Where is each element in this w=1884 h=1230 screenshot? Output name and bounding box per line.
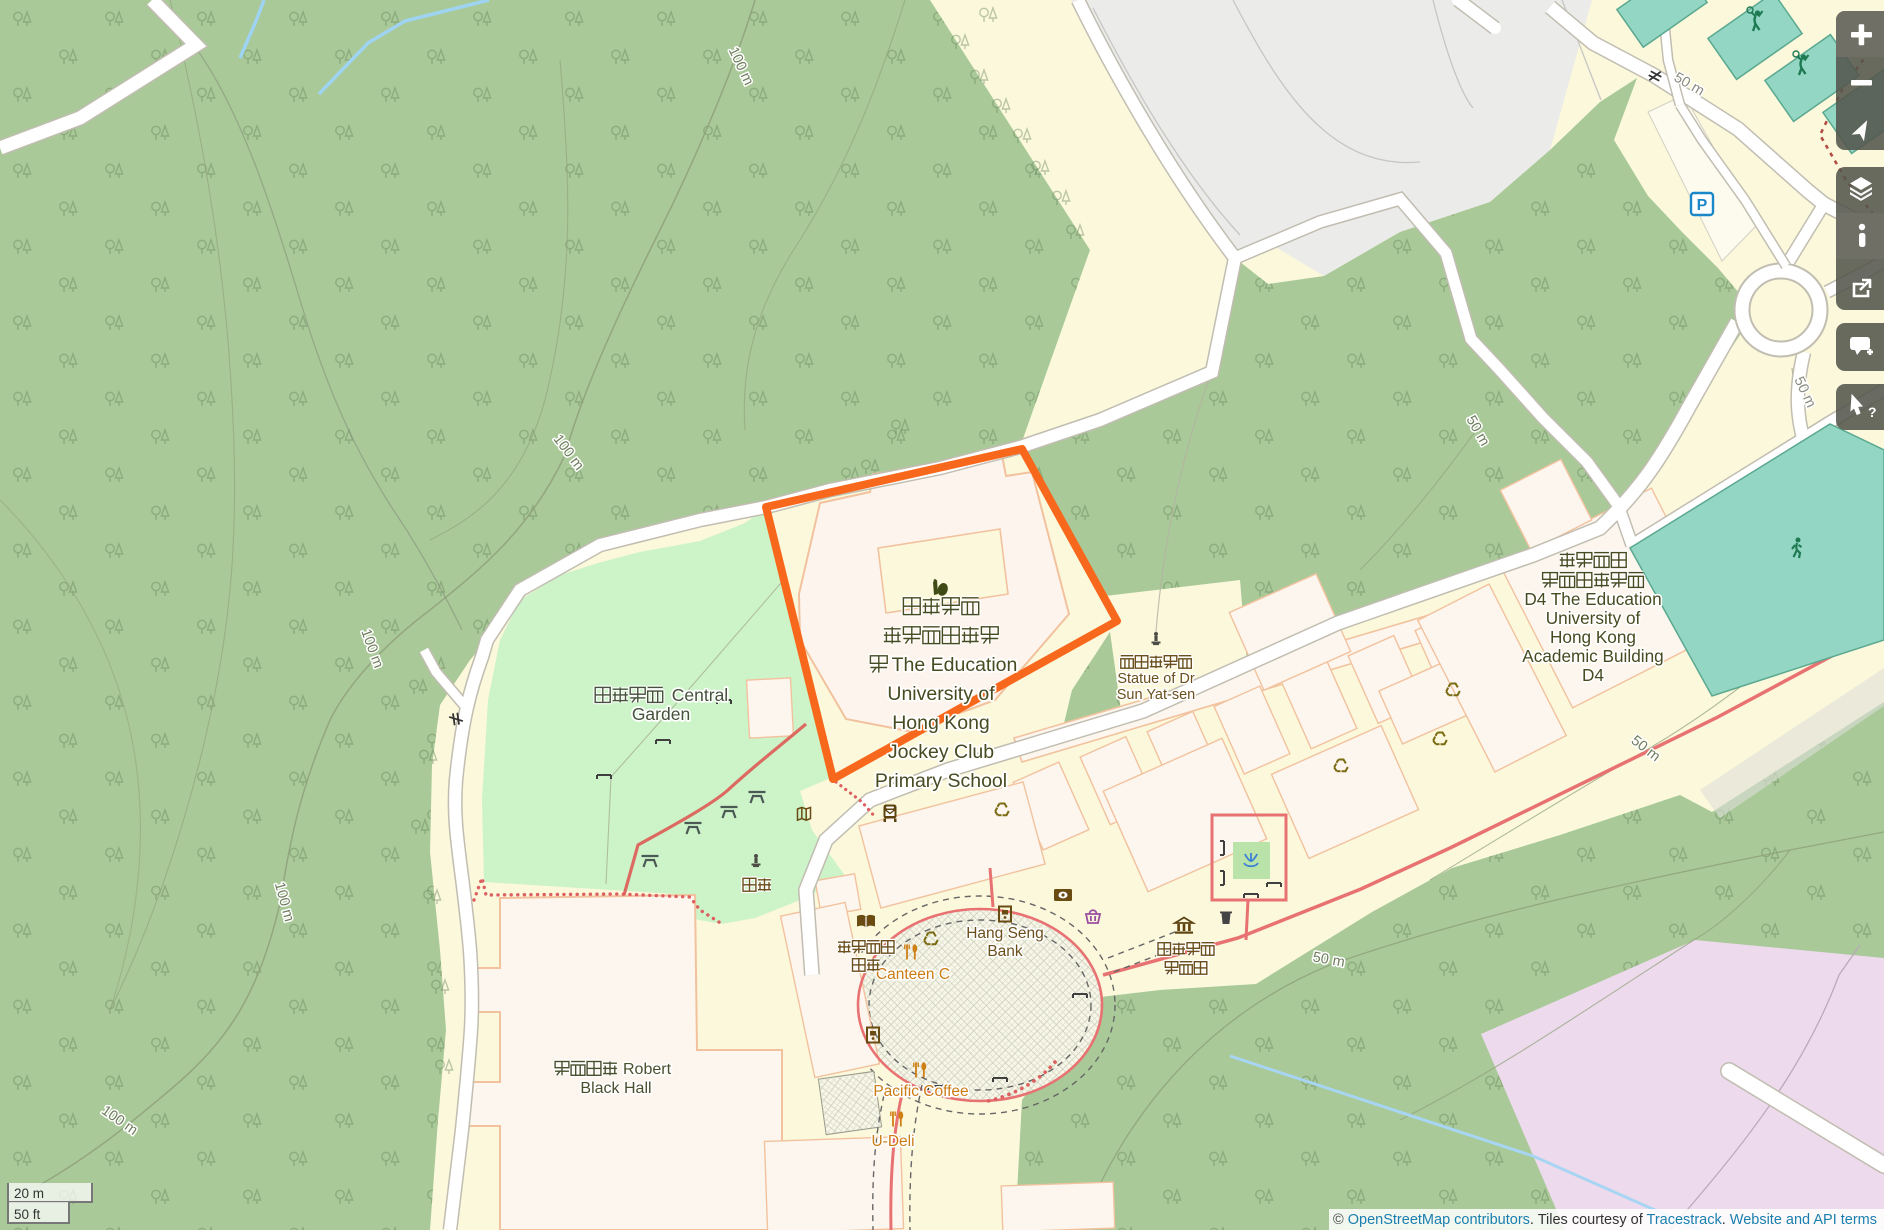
svg-text:Academic Building: Academic Building [1522, 646, 1663, 666]
svg-text:Statue of Dr: Statue of Dr [1117, 671, 1195, 687]
svg-text:Black Hall: Black Hall [580, 1080, 651, 1097]
svg-text:Hong Kong: Hong Kong [1550, 627, 1636, 647]
svg-text:Robert: Robert [623, 1061, 672, 1078]
svg-text:Garden: Garden [632, 704, 690, 724]
svg-text:Bank: Bank [987, 943, 1023, 960]
svg-text:Canteen C: Canteen C [876, 966, 950, 983]
svg-text:Pacific Coffee: Pacific Coffee [873, 1083, 968, 1100]
svg-text:U-Deli: U-Deli [871, 1133, 914, 1150]
svg-text:D4 The Education: D4 The Education [1524, 589, 1661, 609]
svg-text:Primary School: Primary School [875, 770, 1007, 792]
svg-text:20 m: 20 m [14, 1186, 44, 1201]
svg-text:The Education: The Education [892, 654, 1018, 676]
svg-text:Central: Central [672, 685, 728, 705]
svg-text:University of: University of [1546, 608, 1641, 628]
svg-text:D4: D4 [1582, 665, 1604, 685]
svg-text:?: ? [1868, 404, 1877, 420]
svg-text:Sun Yat-sen: Sun Yat-sen [1117, 687, 1195, 703]
svg-text:Jockey Club: Jockey Club [888, 741, 994, 763]
svg-text:50 ft: 50 ft [14, 1207, 41, 1222]
svg-text:P: P [1697, 197, 1708, 214]
svg-text:University of: University of [887, 683, 995, 705]
svg-text:© OpenStreetMap contributors.: © OpenStreetMap contributors. Tiles cour… [1333, 1212, 1877, 1228]
svg-text:Hang Seng: Hang Seng [966, 925, 1044, 942]
svg-text:Hong Kong: Hong Kong [892, 712, 990, 734]
